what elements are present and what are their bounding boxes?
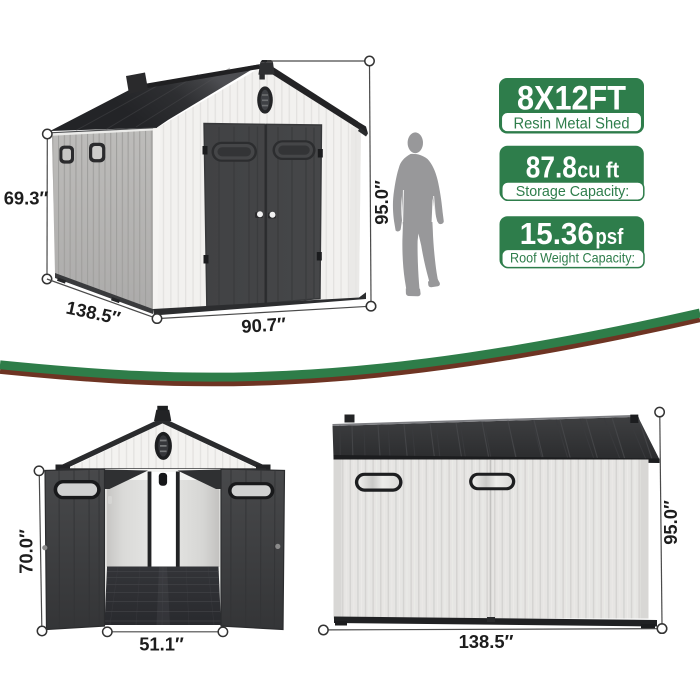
svg-text:70.0″: 70.0″ (16, 529, 37, 574)
svg-text:cu ft: cu ft (577, 157, 620, 182)
svg-text:15.36: 15.36 (520, 216, 594, 251)
svg-text:Storage Capacity:: Storage Capacity: (516, 184, 630, 200)
svg-text:138.5″: 138.5″ (459, 631, 514, 652)
svg-text:90.7″: 90.7″ (241, 313, 287, 337)
svg-text:95.0″: 95.0″ (371, 180, 392, 225)
svg-text:87.8: 87.8 (526, 149, 577, 184)
svg-text:69.3″: 69.3″ (4, 188, 49, 209)
svg-text:8X12FT: 8X12FT (517, 79, 626, 117)
svg-text:95.0″: 95.0″ (660, 500, 681, 545)
svg-text:Roof Weight Capacity:: Roof Weight Capacity: (510, 251, 635, 266)
svg-text:psf: psf (595, 224, 624, 249)
svg-text:Resin Metal Shed: Resin Metal Shed (514, 116, 630, 133)
svg-text:51.1″: 51.1″ (139, 634, 184, 655)
